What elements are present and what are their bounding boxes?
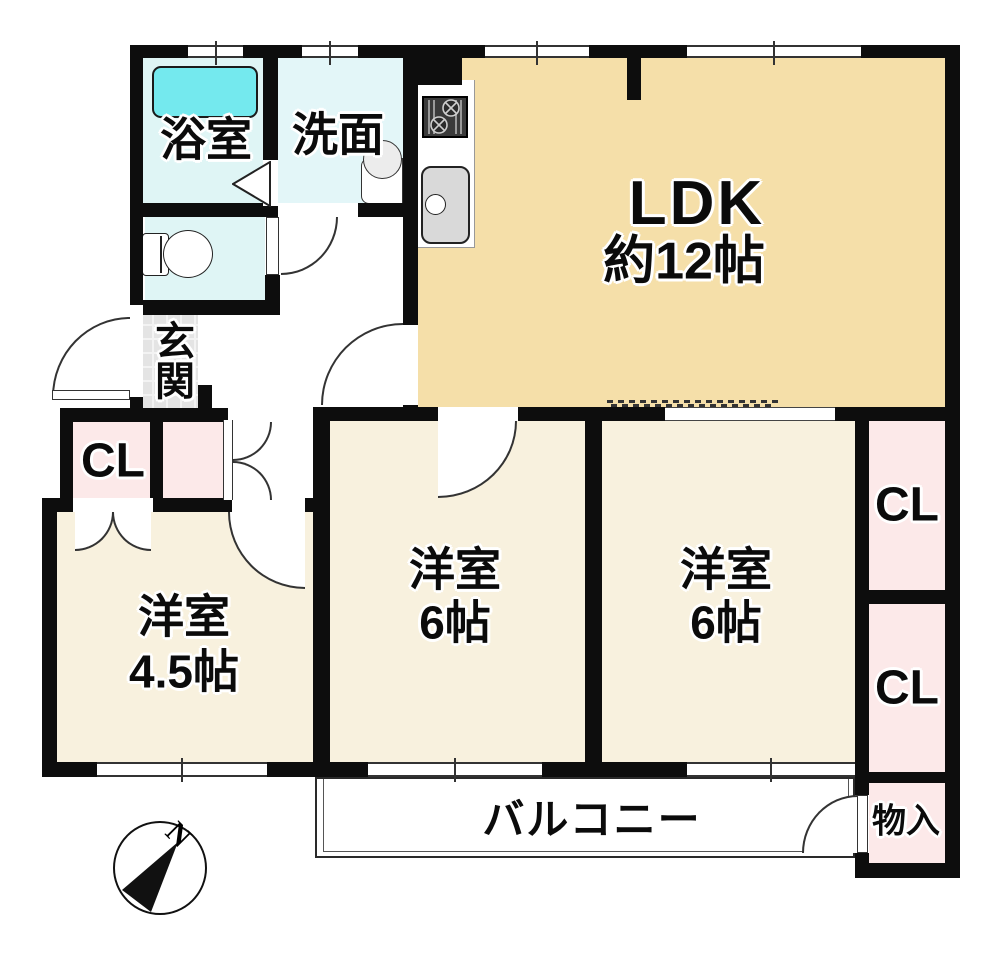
closet2-door-frame: [223, 420, 233, 500]
washroom-label: 洗面: [292, 110, 384, 161]
room-center-door-opening: [438, 407, 518, 421]
wall: [263, 58, 278, 160]
wall: [60, 408, 73, 512]
window: [485, 45, 589, 58]
wall: [403, 58, 418, 325]
washroom-door-opening: [278, 203, 358, 217]
room-small-door-opening: [232, 498, 305, 512]
wall: [585, 407, 602, 777]
window-tick: [215, 41, 217, 65]
wall: [945, 45, 960, 878]
wall: [267, 762, 368, 777]
window: [302, 45, 358, 58]
wall: [150, 408, 163, 512]
room-center-size-label: 6帖: [419, 598, 491, 649]
toilet-door-leaf: [266, 217, 279, 275]
wall: [313, 407, 330, 777]
wall: [130, 300, 280, 315]
window-tick: [770, 758, 772, 782]
ldk-door-opening: [403, 325, 418, 405]
stove-icon: [422, 96, 468, 138]
ldk-door-arc: [321, 323, 403, 405]
toilet-bowl: [163, 230, 213, 278]
window: [687, 762, 855, 777]
wall: [855, 863, 960, 878]
wall: [305, 498, 330, 512]
compass-icon: N: [112, 818, 210, 916]
wall: [42, 498, 73, 512]
room-right-label: 洋室: [680, 545, 772, 596]
bathroom-label: 浴室: [160, 115, 252, 166]
wall: [835, 407, 855, 421]
ldk-size-label: 約12帖: [603, 233, 765, 290]
wall: [869, 590, 946, 604]
entrance-door-arc: [52, 317, 130, 397]
wall: [627, 45, 641, 100]
bathroom-folding-door-icon: [232, 161, 272, 207]
wall: [60, 408, 228, 422]
washroom-door-arc: [281, 217, 338, 275]
balcony-label: バルコニー: [482, 797, 701, 843]
closet2-door-arc: [233, 422, 272, 461]
window-tick: [773, 41, 775, 65]
wall: [403, 58, 462, 85]
closet-left-label: CL: [81, 436, 145, 489]
closet2-door-arc: [233, 461, 272, 500]
window-tick: [454, 758, 456, 782]
wall: [42, 498, 57, 777]
room-center-label: 洋室: [409, 545, 501, 596]
kitchen-sink-faucet: [425, 194, 446, 215]
window: [368, 762, 542, 777]
ldk-label: LDK: [629, 170, 765, 238]
wall: [130, 58, 143, 305]
closet-right-bottom-label: CL: [875, 663, 939, 716]
floor-plan: 浴室 洗面 LDK 約12帖 玄関 CL 洋室 4.5帖 洋室 6帖 洋室 6帖…: [0, 0, 1000, 977]
wall: [542, 762, 687, 777]
genkan-label: 玄関: [149, 320, 193, 400]
sliding-door-track: [611, 404, 771, 407]
wall: [518, 407, 618, 421]
storage-label: 物入: [872, 803, 940, 840]
room-small-label: 洋室: [138, 592, 230, 643]
room-small-size-label: 4.5帖: [129, 647, 239, 698]
wall: [869, 407, 960, 421]
wall: [330, 407, 438, 421]
window: [687, 45, 861, 58]
closet-left2-floor: [163, 420, 223, 498]
window: [188, 45, 243, 58]
storage-door-leaf: [857, 795, 868, 853]
room-right-size-label: 6帖: [690, 598, 762, 649]
entrance-door-leaf: [52, 390, 130, 400]
closet-door-opening: [73, 498, 153, 512]
window-tick: [329, 41, 331, 65]
wall: [869, 772, 946, 783]
sliding-door-opening: [665, 407, 835, 421]
wall: [265, 275, 280, 315]
bathtub: [152, 66, 258, 118]
toilet-tank-line: [160, 236, 162, 273]
window-tick: [181, 758, 183, 782]
window-tick: [536, 41, 538, 65]
wall: [618, 407, 665, 421]
entrance-door-opening: [130, 305, 143, 397]
wall: [153, 498, 232, 512]
window: [97, 762, 267, 777]
wall: [358, 203, 418, 217]
closet-right-top-label: CL: [875, 480, 939, 533]
sliding-door-track: [607, 400, 782, 403]
